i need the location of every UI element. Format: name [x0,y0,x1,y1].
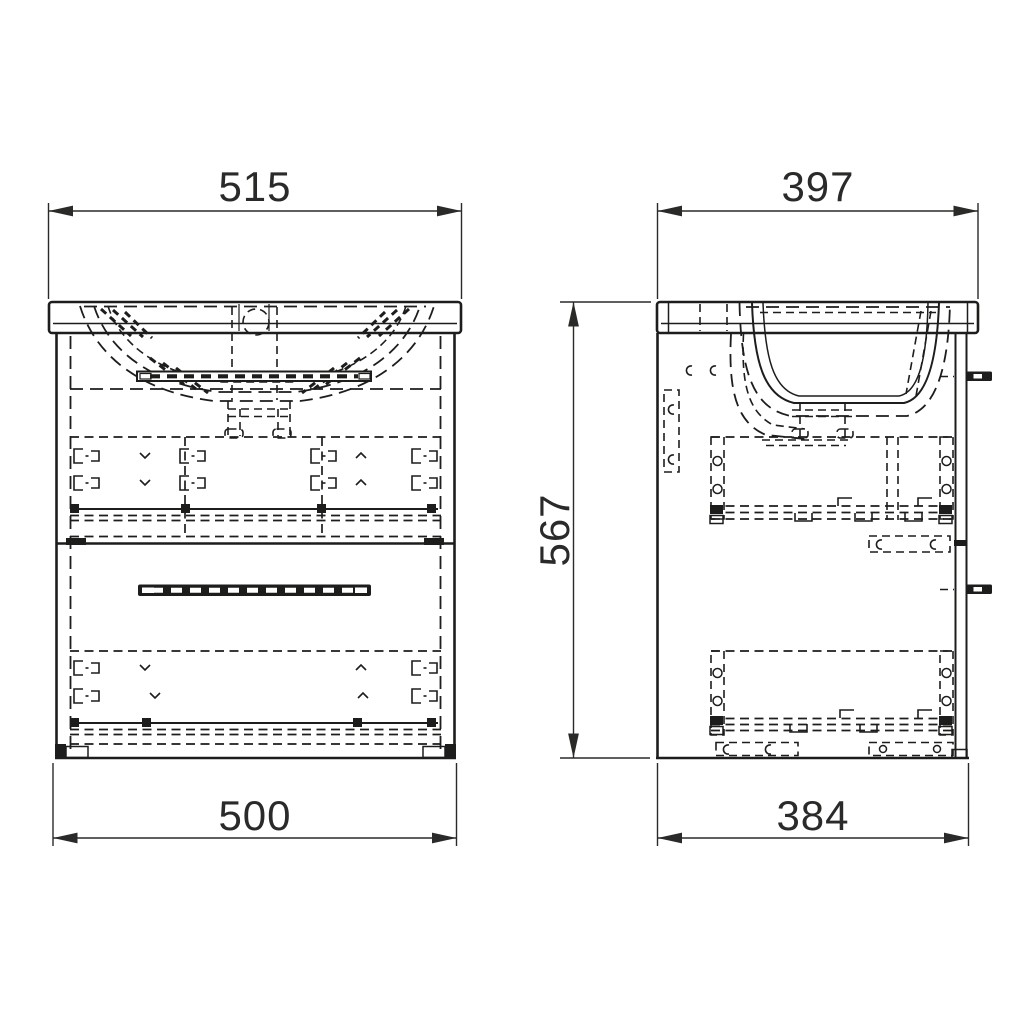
front-cabinet-body [55,333,456,758]
dimension-front-width-bottom: 500 [53,763,457,846]
drawer-slide-clips-row4 [74,689,437,703]
drawer-handle [138,585,371,597]
dimension-label-side-height: 567 [531,493,578,566]
front-drawer-divider [57,538,455,545]
side-top-drawer-details [710,437,953,552]
dimension-side-depth-top: 397 [658,163,979,299]
slide-rail-glyphs-bottom [790,710,932,732]
side-bottom-drawer-details [710,651,953,756]
mounting-rail [137,372,371,382]
technical-drawing-page: { "drawing": { "background_color": "#fff… [0,0,1024,1024]
front-bottom-drawer-details [70,585,441,745]
faucet-hole [243,309,269,335]
dimension-label-front-width-top: 515 [218,163,291,210]
slide-rail-glyphs-top [795,498,932,521]
drawer-slide-clips-row2 [74,476,437,490]
drawer-slide-clips-row3 [74,661,437,675]
dimension-side-depth-bottom: 384 [658,763,969,846]
side-left-fixings [664,366,716,472]
front-feet [55,744,456,758]
basin-drain-side [762,403,853,446]
side-basin-section [730,303,950,446]
dimension-side-height: 567 [531,302,651,758]
front-top-drawer-details [70,372,441,537]
drawing-canvas: 515 [0,0,1024,1024]
dimension-label-side-depth-bottom: 384 [776,792,849,839]
basin-drain-front [225,401,291,438]
drawer-slide-clips-row1 [74,449,437,463]
side-view: 397 567 [531,163,992,846]
front-view: 515 [49,163,462,846]
dimension-front-width-top: 515 [49,163,462,299]
dimension-label-front-width-bottom: 500 [218,792,291,839]
dimension-label-side-depth-top: 397 [781,163,854,210]
